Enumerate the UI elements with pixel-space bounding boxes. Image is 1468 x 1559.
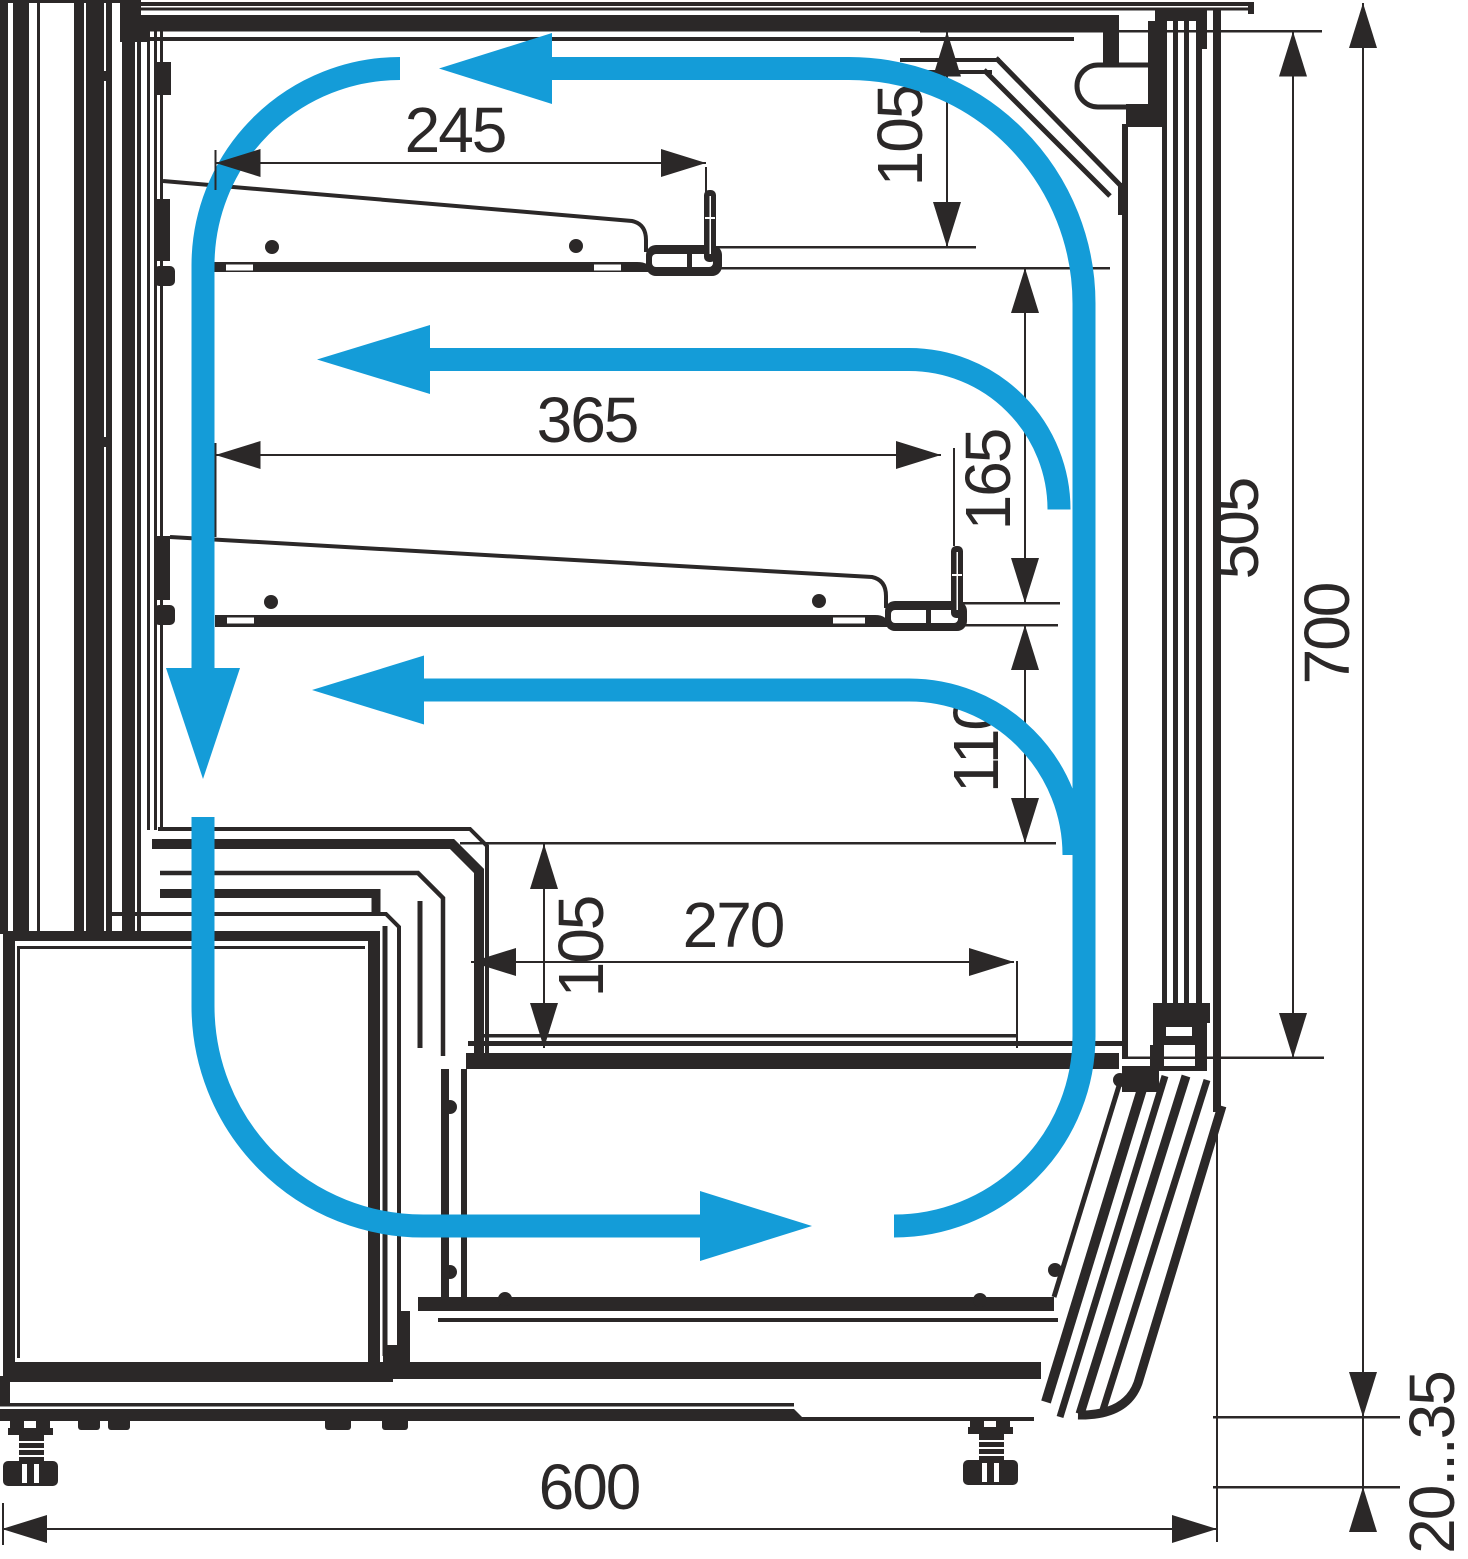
svg-text:105: 105 [545,897,617,998]
svg-text:165: 165 [952,430,1024,531]
svg-text:270: 270 [683,889,784,961]
svg-text:700: 700 [1291,583,1363,684]
svg-text:20...35: 20...35 [1396,1372,1468,1554]
svg-text:505: 505 [1200,479,1272,580]
svg-text:365: 365 [537,384,638,456]
svg-text:105: 105 [864,86,936,187]
svg-text:600: 600 [539,1451,640,1523]
svg-text:245: 245 [405,94,506,166]
